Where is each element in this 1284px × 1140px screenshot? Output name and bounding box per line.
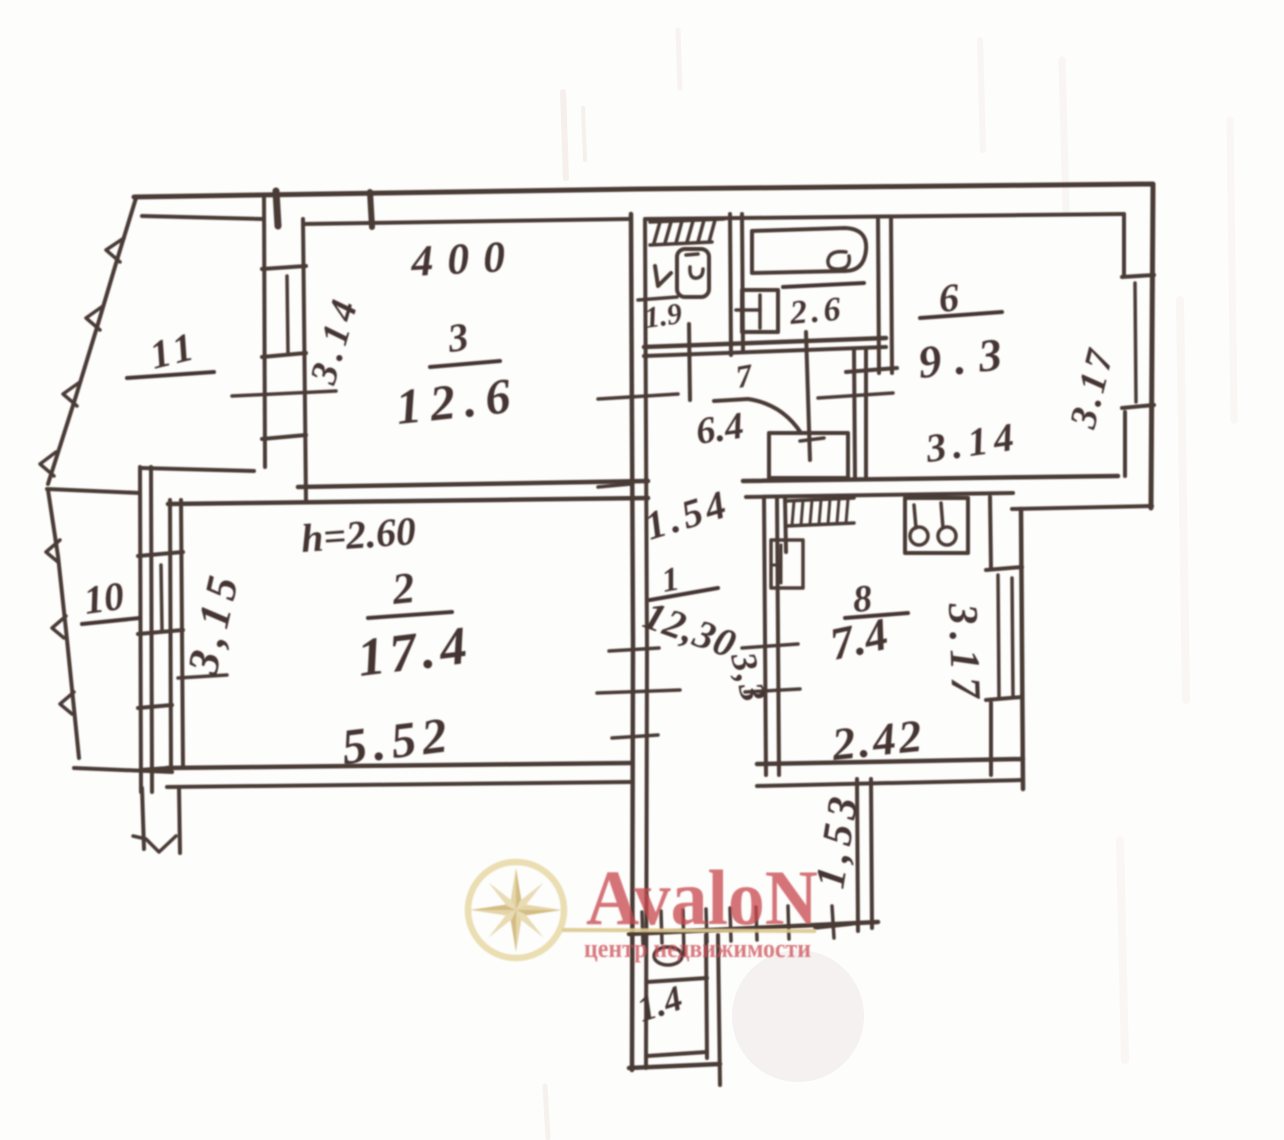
svg-text:1.54: 1.54 xyxy=(639,480,734,548)
svg-text:3.14: 3.14 xyxy=(302,290,368,390)
svg-text:2: 2 xyxy=(389,563,417,614)
svg-text:12.6: 12.6 xyxy=(393,366,522,435)
svg-text:6.4: 6.4 xyxy=(693,405,746,453)
svg-text:3.17: 3.17 xyxy=(939,602,989,706)
svg-text:центр недвижимости: центр недвижимости xyxy=(584,934,811,963)
svg-text:h=2.60: h=2.60 xyxy=(299,508,417,561)
svg-text:2.42: 2.42 xyxy=(829,710,927,770)
svg-text:11: 11 xyxy=(145,323,202,378)
svg-text:3.17: 3.17 xyxy=(1062,342,1123,433)
svg-text:10: 10 xyxy=(81,573,127,623)
svg-text:9.3: 9.3 xyxy=(916,327,1017,388)
svg-text:1.4: 1.4 xyxy=(632,978,687,1030)
svg-text:12,30: 12,30 xyxy=(638,592,743,667)
svg-text:7: 7 xyxy=(733,356,757,395)
svg-text:AvaloN: AvaloN xyxy=(586,854,818,941)
svg-text:1.9: 1.9 xyxy=(642,297,684,335)
svg-text:2.6: 2.6 xyxy=(787,290,846,332)
svg-text:3: 3 xyxy=(444,314,471,361)
svg-text:17.4: 17.4 xyxy=(354,614,475,688)
svg-text:3.14: 3.14 xyxy=(922,413,1022,471)
svg-text:400: 400 xyxy=(409,231,520,286)
svg-text:3,15: 3,15 xyxy=(178,565,250,679)
